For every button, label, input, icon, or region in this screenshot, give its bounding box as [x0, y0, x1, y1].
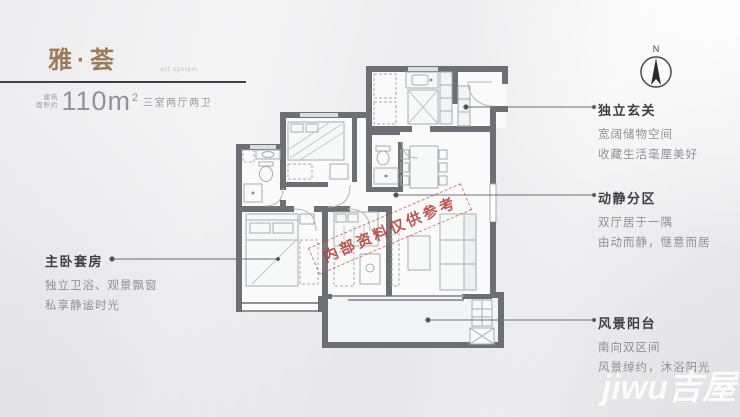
area-value: 110m [62, 89, 132, 113]
series-title: 雅·荟 [48, 40, 119, 75]
series-subtitle: art system [160, 67, 198, 75]
living-window [490, 184, 496, 222]
balcony-sliding-door [332, 295, 464, 297]
bath-window [250, 145, 276, 149]
layout-text: 三室两厅两卫 [143, 94, 212, 113]
flyer-canvas: N 内部资料仅供参考 雅·荟 art system 建筑 面积约 110m 2 … [0, 0, 740, 417]
annotation-balcony-title: 风景阳台 [598, 313, 711, 332]
area-info: 建筑 面积约 110m 2 三室两厅两卫 [0, 89, 246, 113]
annotation-zoning: 动静分区 双厅居于一隅 由动而静，惬意而居 [598, 188, 711, 253]
annotation-entry-title: 独立玄关 [598, 100, 698, 119]
annotation-zoning-title: 动静分区 [598, 188, 711, 207]
compass-icon: N [641, 44, 671, 87]
annotation-zoning-line1: 双厅居于一隅 [598, 213, 711, 233]
annotation-entry-line2: 收藏生活毫厘美好 [598, 145, 698, 165]
plan-header: 雅·荟 art system 建筑 面积约 110m 2 三室两厅两卫 [0, 40, 246, 113]
jiwu-brand-watermark: jiwu吉屋 [602, 360, 736, 409]
area-label: 建筑 面积约 [36, 94, 59, 113]
compass-north-label: N [653, 44, 660, 54]
bedroom3-window [300, 113, 338, 117]
kitchen-window [408, 67, 438, 71]
header-divider [0, 81, 246, 83]
annotation-master-suite: 主卧套房 独立卫浴、观景飘窗 私享静谧时光 [45, 251, 158, 316]
annotation-master-title: 主卧套房 [45, 251, 158, 270]
annotation-entry: 独立玄关 宽阔储物空间 收藏生活毫厘美好 [598, 100, 698, 165]
balcony-items [470, 300, 494, 344]
annotation-master-line1: 独立卫浴、观景飘窗 [45, 276, 158, 296]
annotation-entry-line1: 宽阔储物空间 [598, 125, 698, 145]
annotation-zoning-line2: 由动而静，惬意而居 [598, 233, 711, 253]
area-unit-sup: 2 [132, 92, 138, 104]
annotation-balcony-line1: 南向双区间 [598, 338, 711, 358]
annotation-master-line2: 私享静谧时光 [45, 296, 158, 316]
master-bay-window [240, 302, 320, 304]
